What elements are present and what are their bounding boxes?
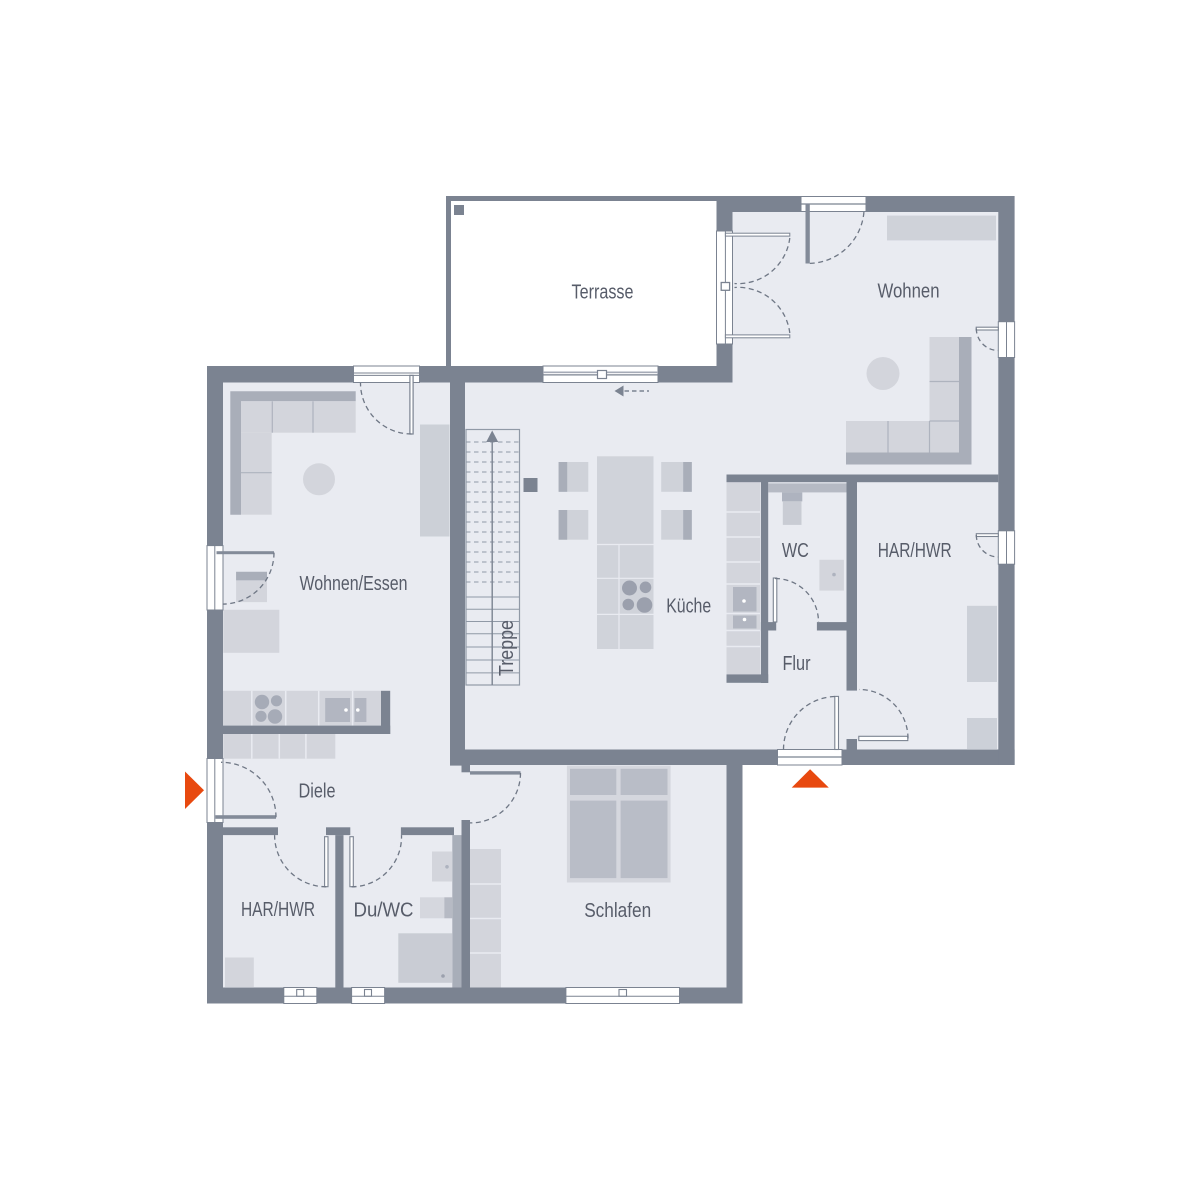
svg-text:Treppe: Treppe bbox=[496, 620, 518, 676]
svg-text:Schlafen: Schlafen bbox=[584, 900, 651, 922]
svg-text:Wohnen: Wohnen bbox=[878, 281, 940, 303]
svg-text:WC: WC bbox=[782, 540, 809, 562]
svg-text:HAR/HWR: HAR/HWR bbox=[241, 899, 315, 921]
svg-text:Terrasse: Terrasse bbox=[572, 282, 634, 304]
svg-text:Diele: Diele bbox=[299, 781, 336, 803]
svg-text:Küche: Küche bbox=[666, 595, 711, 617]
svg-text:Wohnen/Essen: Wohnen/Essen bbox=[300, 573, 408, 595]
svg-text:Du/WC: Du/WC bbox=[354, 900, 414, 922]
svg-text:HAR/HWR: HAR/HWR bbox=[878, 540, 952, 562]
svg-text:Flur: Flur bbox=[783, 653, 811, 675]
